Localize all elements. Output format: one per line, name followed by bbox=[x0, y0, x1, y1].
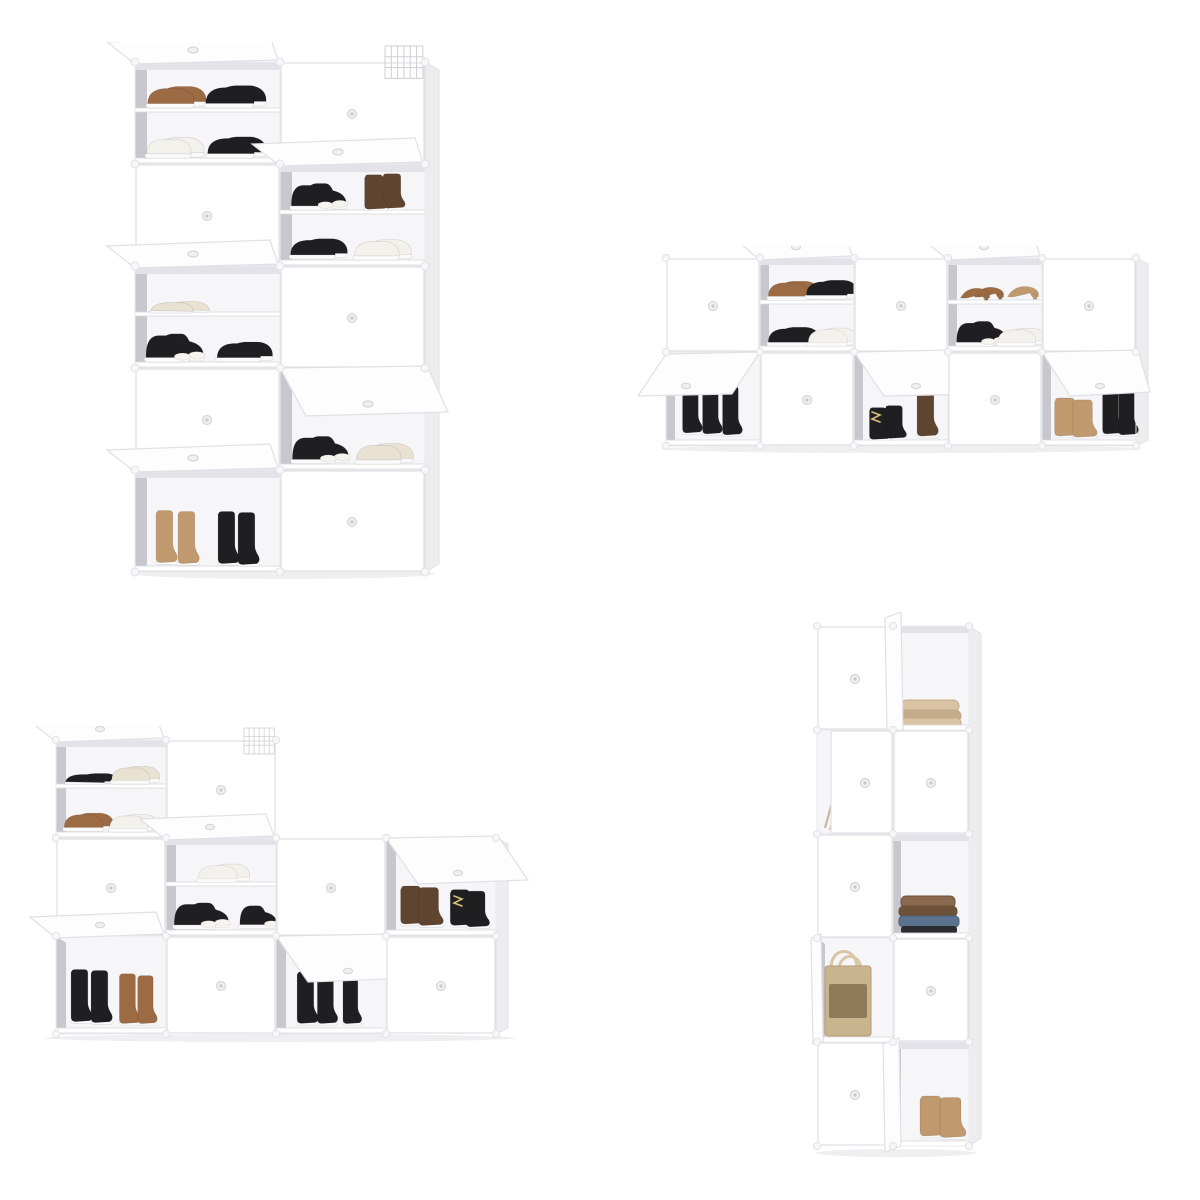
open-door bbox=[885, 612, 903, 732]
closed-door-cube bbox=[167, 937, 275, 1033]
open-cube-boots bbox=[30, 912, 166, 1034]
tall-shoe-rack-graphic bbox=[95, 42, 455, 580]
ajar-door-cube-sticks bbox=[817, 730, 893, 834]
open-cube-blanket bbox=[885, 612, 969, 732]
closed-door-cube bbox=[855, 259, 947, 351]
closed-door-cube bbox=[281, 471, 424, 571]
product-photo-staircase-shoe-rack bbox=[28, 726, 542, 1050]
open-cube-boots bbox=[638, 352, 760, 446]
closed-door-cube bbox=[949, 353, 1041, 445]
open-door bbox=[811, 934, 823, 1044]
closed-door-cube bbox=[281, 267, 424, 367]
wide-shoe-rack-graphic bbox=[630, 246, 1154, 460]
open-flap-down bbox=[280, 366, 448, 416]
folded-blanket bbox=[899, 700, 961, 728]
open-door bbox=[883, 1038, 901, 1152]
open-cube-straw-bag bbox=[811, 934, 893, 1044]
staircase-shoe-rack-graphic bbox=[28, 726, 542, 1050]
closed-door-cube bbox=[894, 731, 968, 833]
open-cube-boots bbox=[883, 1038, 969, 1152]
closed-door-cube bbox=[277, 839, 385, 935]
open-cube-boots bbox=[1042, 350, 1150, 446]
closed-door-cube bbox=[1043, 259, 1135, 351]
open-flap bbox=[30, 912, 164, 938]
closed-door-cube bbox=[894, 939, 968, 1041]
product-photo-storage-tower bbox=[800, 612, 992, 1172]
cabinet-side bbox=[425, 62, 439, 572]
closed-door-cube bbox=[818, 1043, 892, 1145]
closed-door-cube bbox=[818, 835, 892, 937]
open-cube-clothes bbox=[893, 834, 969, 938]
product-photo-wide-shoe-rack bbox=[630, 246, 1154, 460]
closed-door-cube bbox=[761, 353, 853, 445]
storage-tower-graphic bbox=[800, 612, 992, 1172]
product-image-collage bbox=[0, 0, 1200, 1200]
open-cube-flap-down bbox=[280, 366, 448, 470]
folded-clothes bbox=[899, 896, 959, 934]
closed-door-cube bbox=[667, 259, 759, 351]
closed-door-cube bbox=[818, 627, 892, 729]
open-cube-boots bbox=[107, 444, 280, 572]
product-photo-tall-shoe-rack bbox=[95, 42, 455, 580]
open-cube-shelves bbox=[107, 240, 280, 368]
cabinet-side bbox=[969, 626, 981, 1146]
closed-door-cube bbox=[387, 937, 495, 1033]
